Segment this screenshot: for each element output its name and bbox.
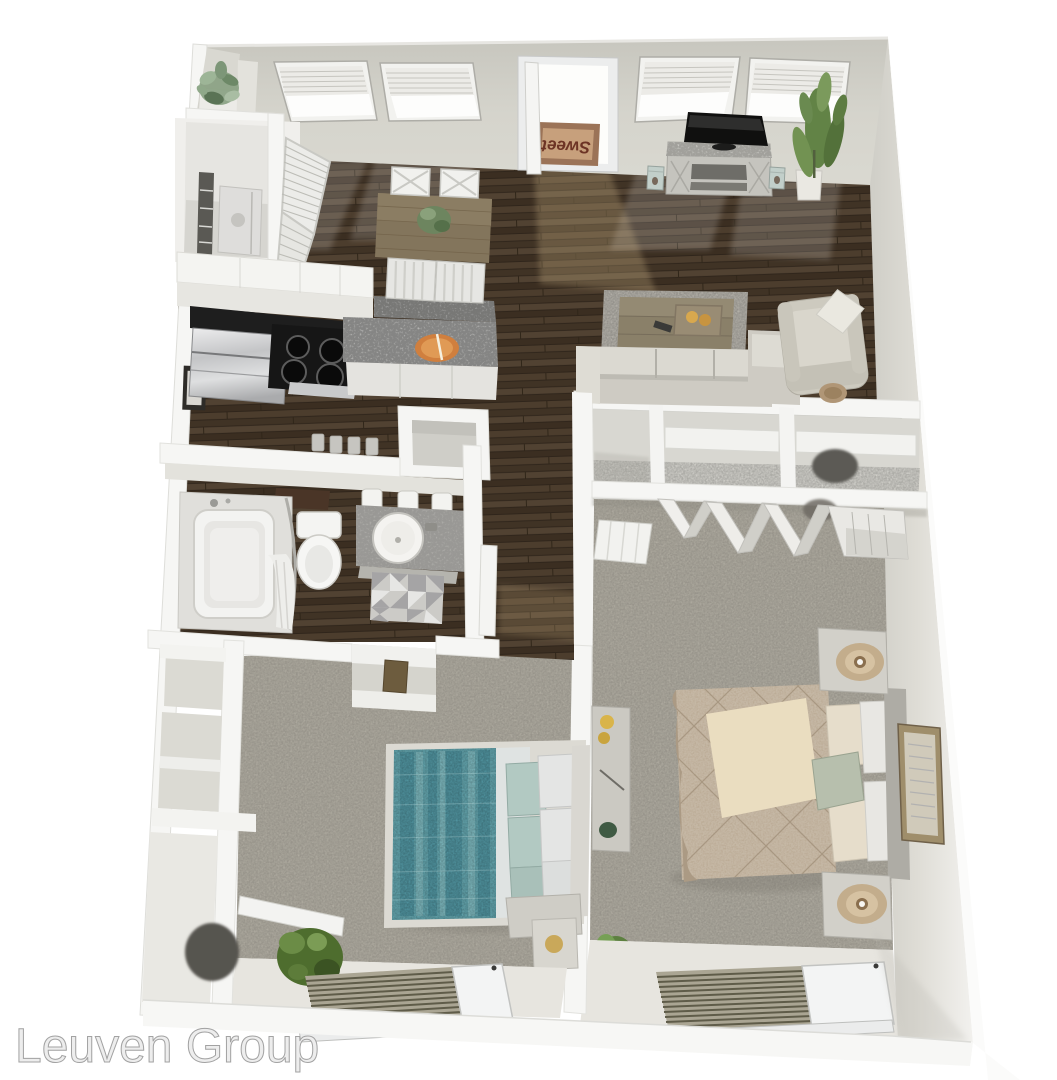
svg-text:Leuven Group: Leuven Group xyxy=(15,1020,319,1073)
svg-text:Sweet: Sweet xyxy=(540,136,591,157)
